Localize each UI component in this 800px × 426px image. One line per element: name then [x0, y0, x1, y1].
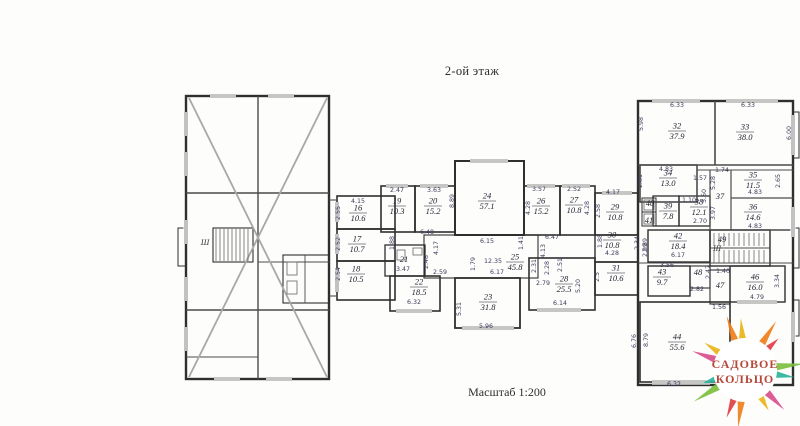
dimension-label: 2.58 [595, 204, 602, 218]
room-number: 35 [748, 170, 758, 180]
room-label-46: 4616.0 [746, 272, 764, 293]
room-area: 31.8 [480, 302, 497, 312]
room-label-24: 2457.1 [478, 191, 496, 212]
dimension-label: 4.83 [659, 166, 673, 173]
room-area: 38.0 [737, 132, 754, 142]
dimension-label: 3.57 [532, 186, 546, 193]
dimension-label: 1.40 [716, 268, 730, 275]
room-label-33: 3338.0 [736, 122, 754, 143]
logo: САДОВОЕКОЛЬЦО [660, 312, 800, 426]
stairwell-label: III [712, 244, 721, 253]
room-label-37: 37 [715, 191, 725, 201]
dimension-label: 6.32 [407, 299, 421, 306]
dimension-label: 2.34 [634, 236, 641, 250]
dimension-label: 5.31 [456, 302, 463, 316]
room-number: 33 [740, 122, 750, 132]
window-symbol [396, 308, 432, 313]
dimension-label: 6.33 [670, 102, 684, 109]
window-symbol [183, 220, 188, 244]
dimension-label: 4.28 [605, 250, 619, 257]
page-title: 2-ой этаж [417, 64, 527, 79]
room-label-29: 2910.8 [606, 202, 624, 223]
room-label-16: 1610.6 [349, 203, 367, 224]
window-symbol [210, 93, 236, 98]
room-area: 57.1 [480, 201, 495, 211]
dimension-label: 6.17 [490, 269, 504, 276]
scale-label: Масштаб 1:200 [447, 385, 567, 400]
dimension-label: 2.28 [544, 261, 551, 275]
dimension-label: 6.33 [741, 102, 755, 109]
room-number: 18 [352, 264, 361, 274]
room-label-42: 4218.4 [669, 231, 687, 252]
room-label-25: 2545.8 [506, 252, 524, 273]
room-area: 45.8 [508, 262, 524, 272]
wall [337, 196, 395, 229]
fixture-icon [287, 262, 297, 275]
room-number: 49 [718, 234, 727, 244]
window-symbol [183, 112, 188, 136]
room-area: 10.5 [349, 274, 364, 284]
room-number: 26 [537, 196, 546, 206]
room-label-20: 2015.2 [424, 196, 442, 217]
room-area: 18.5 [412, 287, 427, 297]
dimension-label: 4.15 [351, 198, 365, 205]
window-symbol [183, 152, 188, 176]
room-number: 41 [645, 215, 654, 225]
room-area: 15.2 [534, 206, 550, 216]
dimension-label: 2.81 [637, 174, 644, 188]
room-number: 23 [484, 292, 493, 302]
dimension-label: 3.63 [427, 187, 441, 194]
window-symbol [183, 327, 188, 351]
room-number: 27 [570, 195, 579, 205]
room-area: 10.8 [567, 205, 583, 215]
dimension-label: 2.89 [642, 238, 649, 252]
room-area: 16.0 [748, 282, 764, 292]
dimension-label: 4.17 [606, 189, 620, 196]
window-symbol [790, 207, 795, 237]
dimension-label: 2.52 [335, 237, 342, 251]
dimension-label: 2.59 [433, 269, 447, 276]
dimension-label: 12.35 [484, 258, 502, 265]
dimension-label: 4.79 [750, 294, 764, 301]
room-area: 9.7 [657, 277, 668, 287]
dimension-label: 5.98 [638, 117, 645, 131]
dimension-label: 1.88 [389, 236, 396, 250]
dimension-label: 6.14 [553, 300, 567, 307]
fixture-icon [287, 281, 297, 294]
room-label-23: 2331.8 [479, 292, 497, 313]
room-number: 39 [663, 201, 673, 211]
dimension-label: 2.51 [557, 258, 564, 272]
dimension-label: 1.74 [715, 167, 729, 174]
dimension-label: 5.28 [710, 176, 717, 190]
dimension-label: 3.47 [396, 266, 410, 273]
room-area: 14.6 [746, 212, 762, 222]
room-label-49: 49 [718, 234, 727, 244]
room-number: 29 [611, 202, 620, 212]
room-area: 10.6 [351, 213, 367, 223]
window-symbol [183, 277, 188, 301]
room-label-17: 1710.7 [348, 234, 366, 255]
wall [337, 261, 395, 300]
dimension-label: 1.41 [518, 236, 525, 250]
logo-splash: САДОВОЕКОЛЬЦО [660, 312, 800, 426]
dimension-label: 4.28 [525, 201, 532, 215]
window-symbol [470, 158, 508, 163]
room-area: 7.8 [663, 211, 674, 221]
logo-text-line2: КОЛЬЦО [716, 372, 775, 386]
dimension-label: 2.47 [705, 265, 712, 279]
room-number: 42 [674, 231, 683, 241]
dimension-label: 5.60 [701, 189, 708, 203]
dimension-label: 1.56 [712, 304, 726, 311]
room-area: 25.5 [557, 284, 572, 294]
window-symbol [266, 376, 292, 381]
fixture-icon [413, 248, 422, 255]
dimension-label: 3.34 [774, 274, 781, 288]
room-area: 12.1 [692, 207, 707, 217]
room-number: 40 [646, 198, 655, 208]
dimension-label: 2.65 [775, 174, 782, 188]
room-area: 10.8 [608, 212, 624, 222]
dimension-label: 2.82 [690, 286, 704, 293]
room-number: 28 [560, 274, 569, 284]
room-number: 30 [607, 230, 617, 240]
room-area: 10.6 [609, 273, 625, 283]
room-number: 20 [429, 196, 438, 206]
dimension-label: 3.56 [660, 262, 674, 269]
room-area: 10.7 [350, 244, 366, 254]
room-number: 46 [751, 272, 760, 282]
dimension-label: 2.47 [390, 187, 404, 194]
room-number: 17 [353, 234, 362, 244]
room-number: 32 [672, 121, 682, 131]
room-label-47: 47 [716, 280, 725, 290]
dimension-label: 2.70 [693, 218, 707, 225]
room-number: 36 [748, 202, 758, 212]
dimension-label: 4.13 [540, 244, 547, 258]
window-symbol [214, 376, 240, 381]
dimension-label: 2.55 [335, 206, 342, 220]
room-area: 13.0 [661, 178, 677, 188]
dimension-label: 2.48 [423, 255, 430, 269]
window-symbol [268, 93, 294, 98]
dimension-label: 3.97 [710, 206, 717, 220]
room-number: 19 [393, 196, 402, 206]
dimension-label: 6.76 [631, 334, 638, 348]
room-area: 15.2 [426, 206, 442, 216]
dimension-label: 6.47 [545, 234, 559, 241]
room-area: 10.3 [390, 206, 405, 216]
room-label-40: 40 [646, 198, 655, 208]
dimension-label: 6.00 [786, 126, 793, 140]
window-symbol [537, 307, 581, 312]
room-label-43: 439.7 [653, 267, 671, 288]
room-number: 48 [694, 267, 703, 277]
dimension-label: 4.83 [748, 223, 762, 230]
dimension-label: 5.20 [575, 279, 582, 293]
dimension-label: 2.5 [594, 272, 601, 282]
dimension-label: 6.17 [671, 252, 685, 259]
room-label-36: 3614.6 [744, 202, 762, 223]
room-label-41: 41 [645, 215, 654, 225]
dimension-label: 8.79 [643, 333, 650, 347]
room-number: 47 [716, 280, 725, 290]
room-label-19: 1910.3 [388, 196, 406, 217]
dimension-label: 4.83 [748, 189, 762, 196]
dimension-label: 5.96 [479, 323, 493, 330]
room-label-21: 21 [400, 254, 409, 264]
room-area: 37.9 [669, 131, 686, 141]
room-label-39: 397.8 [659, 201, 677, 222]
room-number: 22 [415, 277, 424, 287]
stairwell-label: Ш [200, 238, 210, 247]
dimension-label: 6.48 [420, 229, 434, 236]
room-label-26: 2615.2 [532, 196, 550, 217]
dimension-label: 1.79 [470, 257, 477, 271]
dimension-label: 4.28 [584, 201, 591, 215]
room-number: 31 [611, 263, 621, 273]
room-number: 25 [511, 252, 520, 262]
dimension-label: 4.17 [433, 241, 440, 255]
dimension-label: 2.52 [567, 186, 581, 193]
room-label-31: 3110.6 [607, 263, 625, 284]
dimension-label: 2.79 [536, 280, 550, 287]
room-area: 10.8 [605, 240, 621, 250]
room-label-32: 3237.9 [668, 121, 686, 142]
dimension-label: 2.31 [531, 259, 538, 273]
dimension-label: 1.88 [597, 234, 604, 248]
room-number: 24 [483, 191, 492, 201]
dimension-label: 8.89 [449, 194, 456, 208]
dimension-label: 2.54 [335, 267, 342, 281]
room-area: 18.4 [671, 241, 687, 251]
room-number: 21 [400, 254, 409, 264]
room-label-27: 2710.8 [565, 195, 583, 216]
room-label-22: 2218.5 [410, 277, 428, 298]
dimension-label: 6.15 [480, 238, 494, 245]
room-label-28: 2825.5 [555, 274, 573, 295]
room-label-18: 1810.5 [347, 264, 365, 285]
logo-text-line1: САДОВОЕ [712, 357, 779, 371]
room-label-30: 3010.8 [603, 230, 621, 251]
floorplan: 1610.61710.71810.51910.32015.2212218.523… [0, 0, 800, 426]
room-label-35: 3511.5 [744, 170, 762, 191]
dimension-label: 1.10 [682, 197, 696, 204]
room-label-48: 48 [694, 267, 703, 277]
wall [648, 266, 690, 296]
room-number: 37 [715, 191, 725, 201]
dimension-label: 1.57 [693, 175, 707, 182]
wall [213, 228, 253, 262]
